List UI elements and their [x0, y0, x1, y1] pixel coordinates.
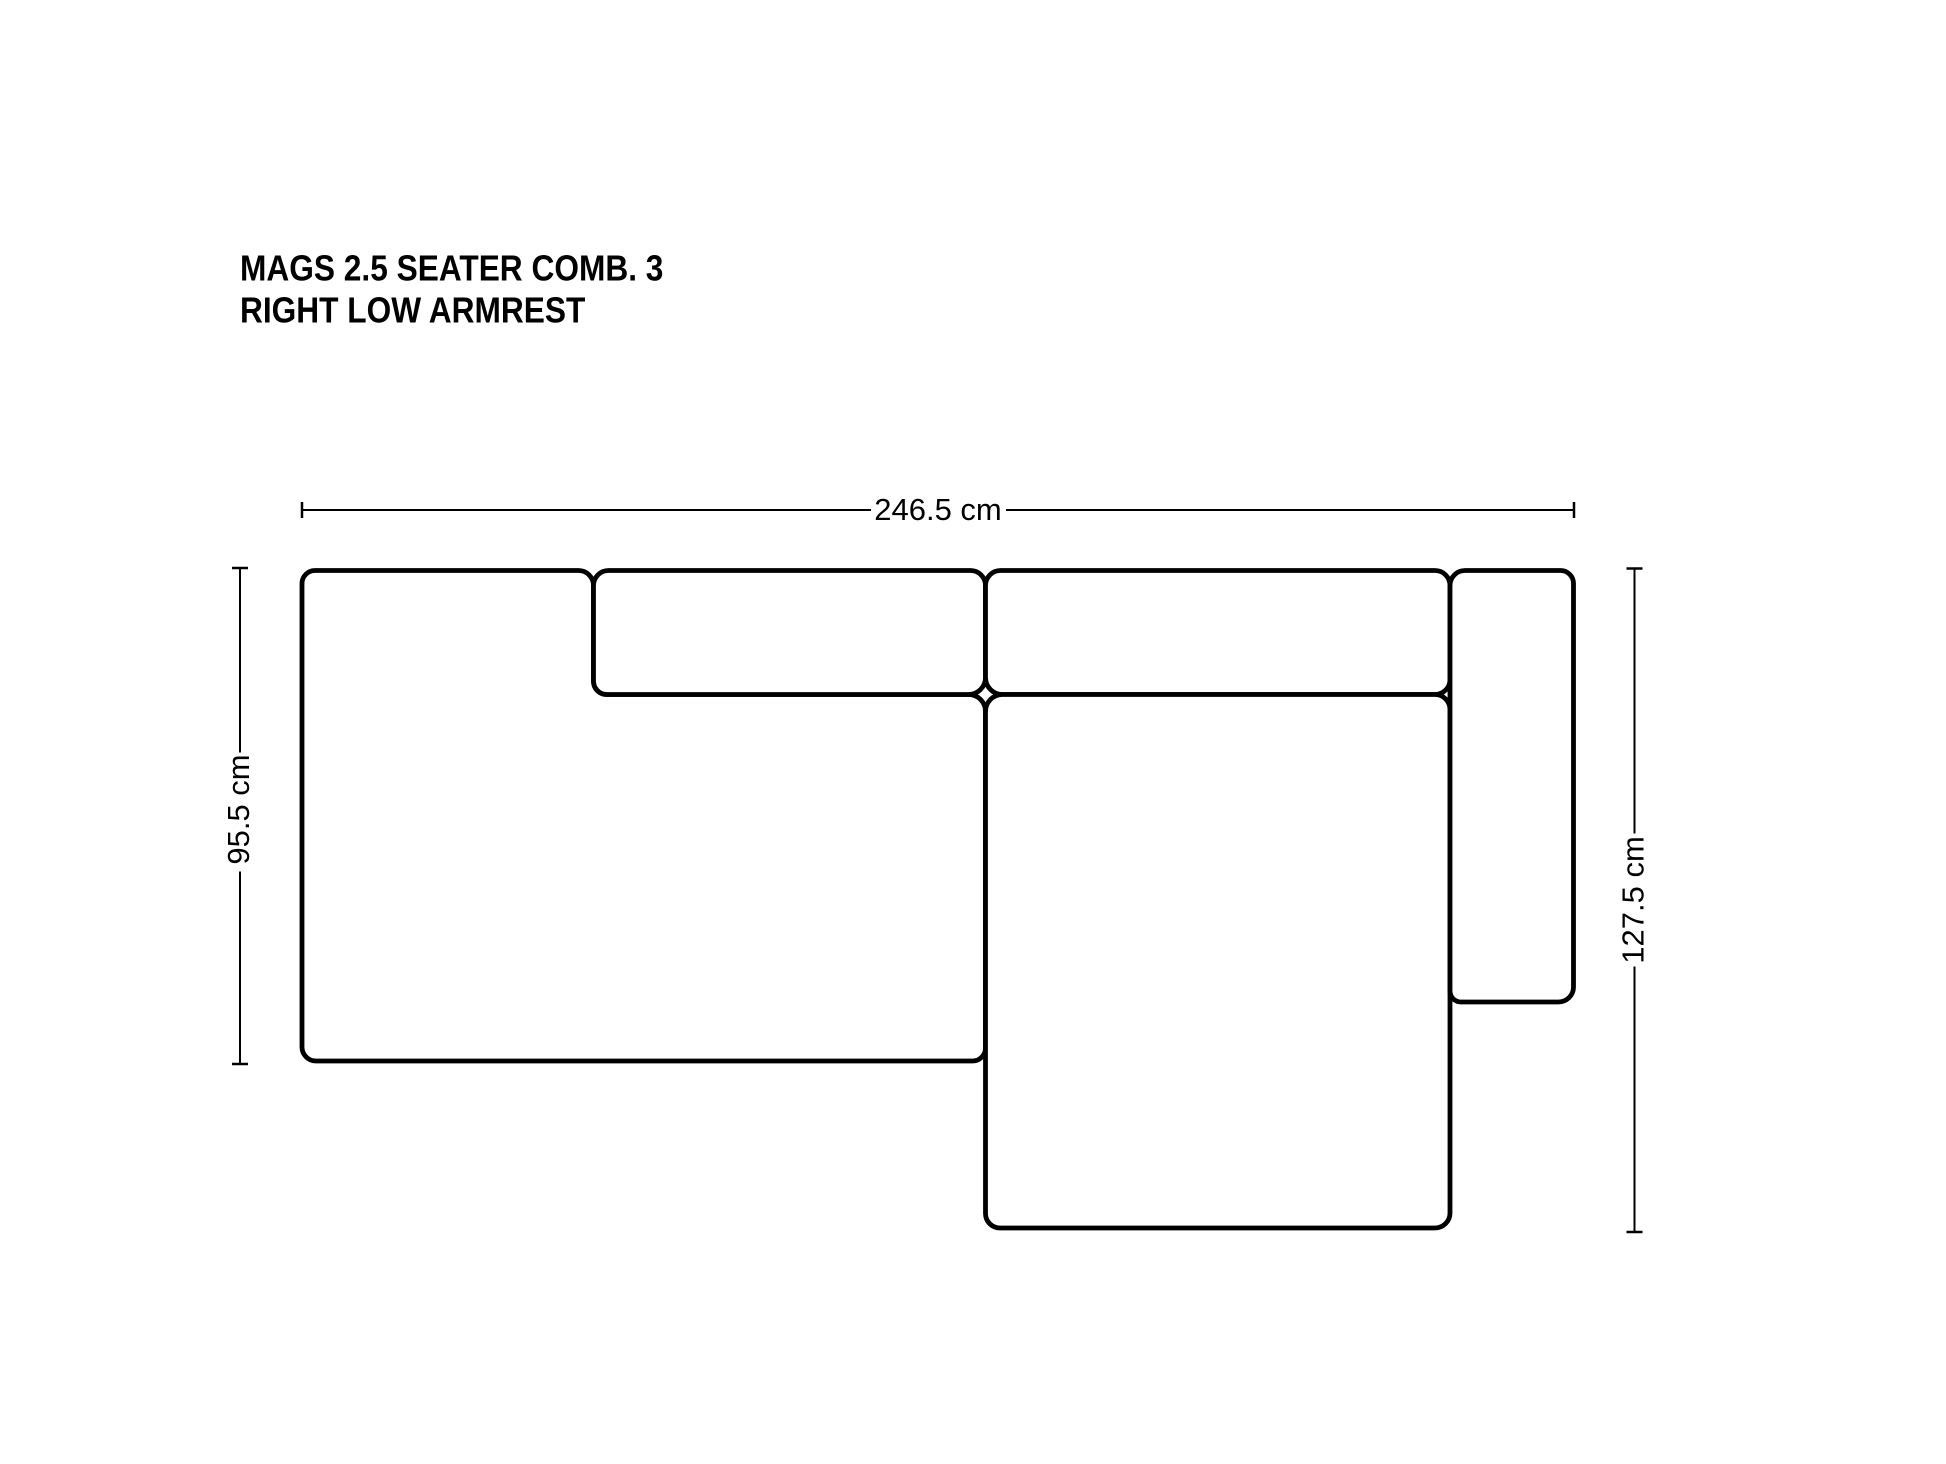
svg-text:MAGS 2.5 SEATER COMB. 3: MAGS 2.5 SEATER COMB. 3 [240, 249, 663, 289]
svg-text:RIGHT LOW ARMREST: RIGHT LOW ARMREST [240, 291, 586, 331]
svg-text:127.5 cm: 127.5 cm [1616, 836, 1651, 964]
svg-text:246.5 cm: 246.5 cm [874, 492, 1002, 527]
svg-text:95.5 cm: 95.5 cm [221, 754, 256, 864]
